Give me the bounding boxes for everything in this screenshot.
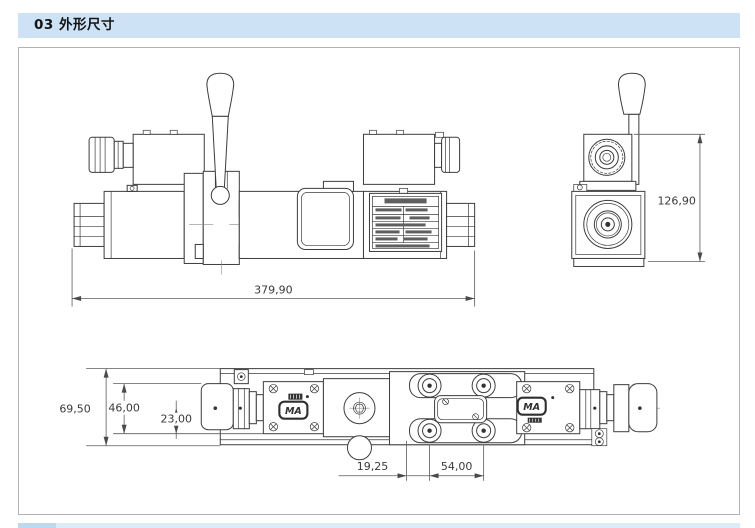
top-right-coil: MA [517,382,580,434]
next-section-bar [18,523,740,528]
top-valve-body [323,379,391,460]
top-mounting-tab [234,370,248,384]
left-cable-plug [89,137,133,172]
section-title: 03 外形尺寸 [34,17,115,33]
drawing-panel: 379,90 [18,47,740,515]
end-lever-knob [618,73,645,114]
end-middle-plate [580,181,636,190]
catalog-page: 03 外形尺寸 [0,0,755,528]
end-screw-tab [574,184,587,191]
end-view: 126,90 [572,73,705,266]
ma-logo-text: MA [285,406,302,417]
cable-clamp [592,429,607,446]
mounting-plate [390,372,525,445]
top-view: MA [59,369,660,481]
dim-label-69-50: 69,50 [59,403,91,416]
dim-label-46-00: 46,00 [108,402,140,415]
dim-label-126-90: 126,90 [657,194,696,207]
next-section-number-box [18,523,56,528]
section-header: 03 外形尺寸 [18,13,740,38]
lever-ball-top [347,436,371,460]
dim-label-379-90: 379,90 [254,284,293,297]
right-port-fitting [447,203,475,246]
dim-label-19-25: 19,25 [357,460,389,473]
outline-dimension-drawing: 379,90 [19,48,739,514]
ma-logo-text: MA [523,402,540,413]
lever-ball [211,186,229,204]
valve-body [239,181,363,258]
end-lower-block [572,191,645,266]
nameplate [369,188,441,251]
dim-label-54-00: 54,00 [441,460,473,473]
side-view: 379,90 [72,73,475,306]
right-coil-block [363,130,434,184]
dim-center-to-edge: 23,00 [159,401,193,439]
dim-label-23-00: 23,00 [160,413,192,426]
left-solenoid [104,185,184,258]
left-port-fitting [74,203,104,246]
lever-knob [207,73,234,116]
end-upper-block [584,134,632,181]
right-cable-plug [435,132,460,172]
